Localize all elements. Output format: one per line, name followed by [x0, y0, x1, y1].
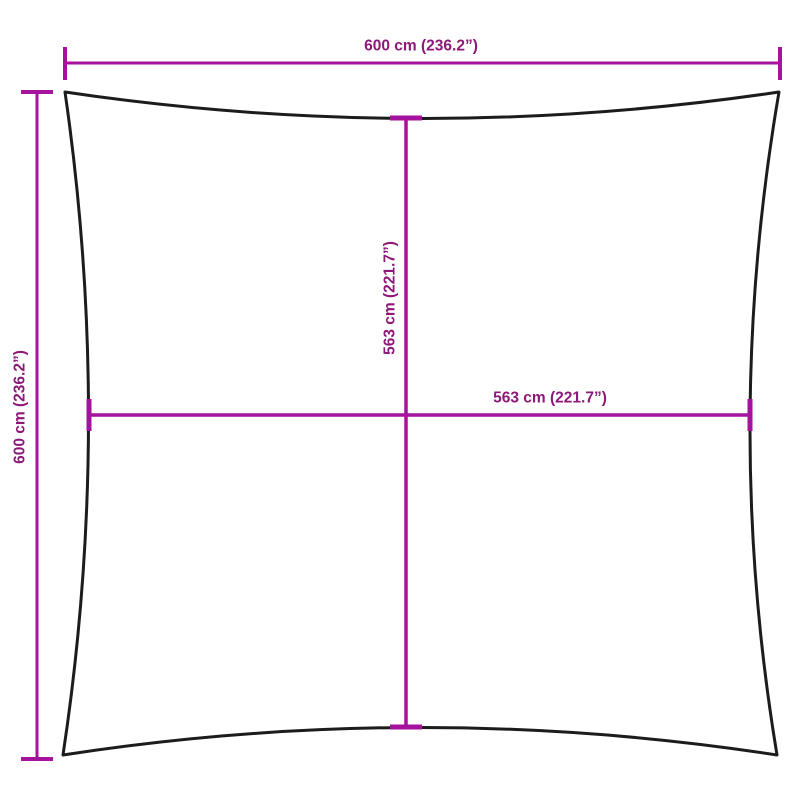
dimension-inner-height: 563 cm (221.7”)	[382, 118, 423, 727]
dimension-outer-height: 600 cm (236.2”)	[12, 92, 54, 759]
dimension-diagram: 600 cm (236.2”) 600 cm (236.2”) 563 cm (…	[0, 0, 800, 800]
inner-width-dimension-label: 563 cm (221.7”)	[493, 390, 607, 407]
outer-width-dimension-label: 600 cm (236.2”)	[364, 38, 478, 55]
dimension-outer-width: 600 cm (236.2”)	[65, 38, 780, 81]
inner-height-dimension-label: 563 cm (221.7”)	[382, 241, 399, 355]
dimension-inner-width: 563 cm (221.7”)	[89, 390, 750, 432]
outer-height-dimension-label: 600 cm (236.2”)	[12, 350, 29, 464]
shade-sail-outline	[63, 92, 779, 755]
dimension-diagram-canvas: 600 cm (236.2”) 600 cm (236.2”) 563 cm (…	[0, 0, 800, 800]
